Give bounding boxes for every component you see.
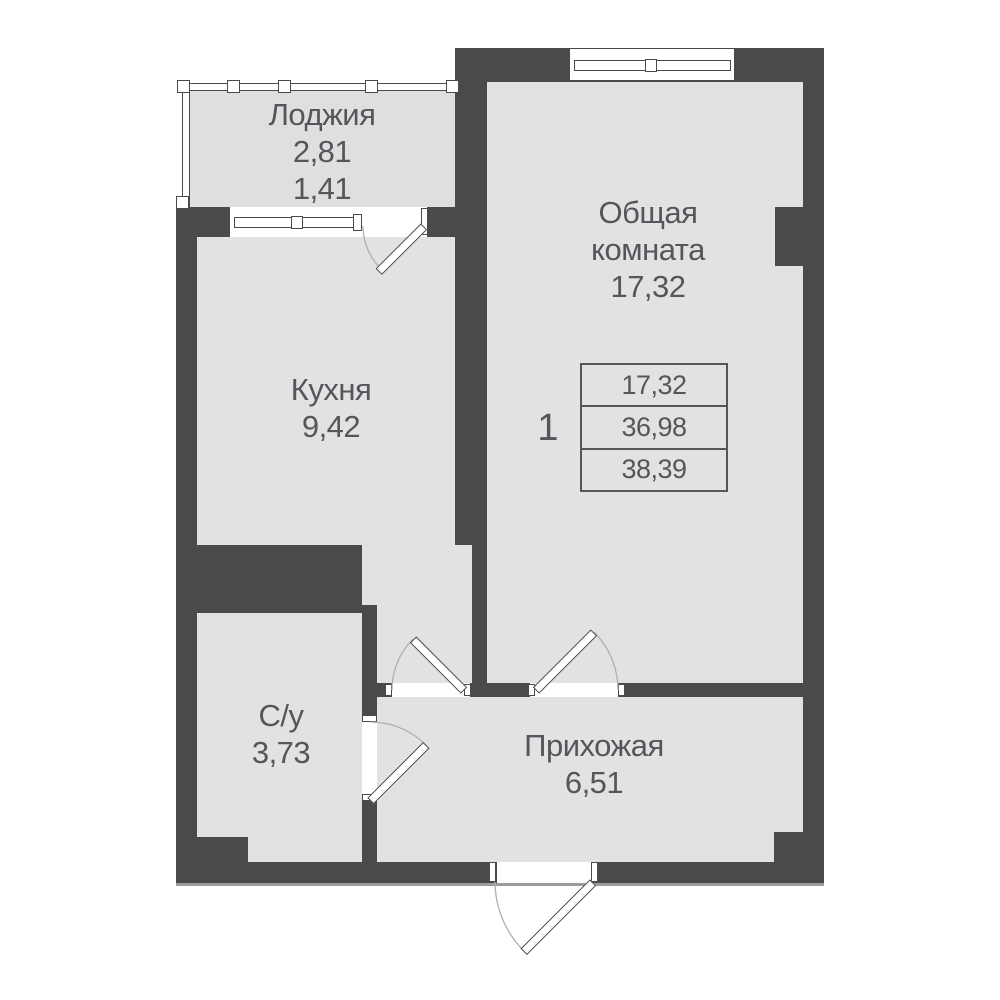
loggia-rail-post (227, 80, 240, 93)
kitchen-area: 9,42 (241, 408, 421, 445)
loggia-area-counted: 1,41 (232, 170, 412, 207)
wall-central-lower (472, 545, 487, 697)
hallway-label-block: Прихожая 6,51 (494, 727, 694, 801)
table-row-total-area: 38,39 (582, 448, 726, 490)
table-row-area-without-loggia: 36,98 (582, 405, 726, 447)
unit-number: 1 (524, 406, 572, 450)
kitchen-door-jamb-left (385, 684, 392, 696)
entrance-opening (497, 862, 591, 883)
bathroom-name: С/у (201, 697, 361, 734)
loggia-label-block: Лоджия 2,81 1,41 (232, 96, 412, 207)
entrance-jamb-right (591, 862, 598, 882)
bathroom-area: 3,73 (201, 734, 361, 771)
wall-loggia-stub-left (197, 207, 230, 237)
loggia-name: Лоджия (232, 96, 412, 133)
loggia-rail-post (278, 80, 291, 93)
loggia-rail-post (446, 80, 459, 93)
living-room-area: 17,32 (548, 268, 748, 305)
loggia-rail-post (177, 80, 190, 93)
kitchen-window-mullion (291, 216, 303, 229)
wall-hallway-mid (470, 683, 530, 697)
wall-hallway-right (618, 683, 803, 697)
wall-kitchen-bathroom (197, 545, 362, 613)
loggia-area-total: 2,81 (232, 133, 412, 170)
area-summary-table: 17,32 36,98 38,39 (580, 363, 728, 492)
entrance-door-arc (495, 882, 524, 951)
bathroom-label-block: С/у 3,73 (201, 697, 361, 771)
wall-hallway-notch (774, 832, 803, 862)
floor-plan: Лоджия 2,81 1,41 Общая комната 17,32 Кух… (0, 0, 1000, 1000)
wall-loggia-stub-right (427, 207, 455, 237)
kitchen-name: Кухня (241, 371, 421, 408)
hallway-name: Прихожая (494, 727, 694, 764)
table-row-living-area: 17,32 (582, 365, 726, 405)
kitchen-label-block: Кухня 9,42 (241, 371, 421, 445)
floor-kitchen-passage (362, 545, 472, 683)
loggia-rail-post (365, 80, 378, 93)
living-room-label-block: Общая комната 17,32 (548, 194, 748, 305)
loggia-rail-post (176, 196, 189, 209)
wall-right (803, 48, 824, 883)
living-window-mullion (645, 59, 657, 72)
living-room-name-line1: Общая (548, 194, 748, 231)
wall-bathroom-notch (197, 837, 248, 862)
hallway-area: 6,51 (494, 764, 694, 801)
loggia-rail-left (182, 90, 190, 208)
kitchen-window-cap (353, 214, 362, 231)
entrance-jamb-left (489, 862, 496, 882)
entrance-door-leaf (521, 879, 597, 955)
wall-bathroom-right-lower (362, 800, 377, 862)
wall-pilaster (775, 207, 803, 266)
wall-bathroom-right-upper (362, 605, 377, 722)
wall-bottom-shadow (176, 883, 824, 886)
wall-left (176, 207, 197, 883)
living-room-name-line2: комната (548, 231, 748, 268)
living-door-jamb-right (618, 684, 625, 696)
bathroom-door-jamb-top (362, 715, 377, 722)
loggia-rail-top (183, 83, 452, 91)
wall-central-upper (455, 48, 487, 545)
